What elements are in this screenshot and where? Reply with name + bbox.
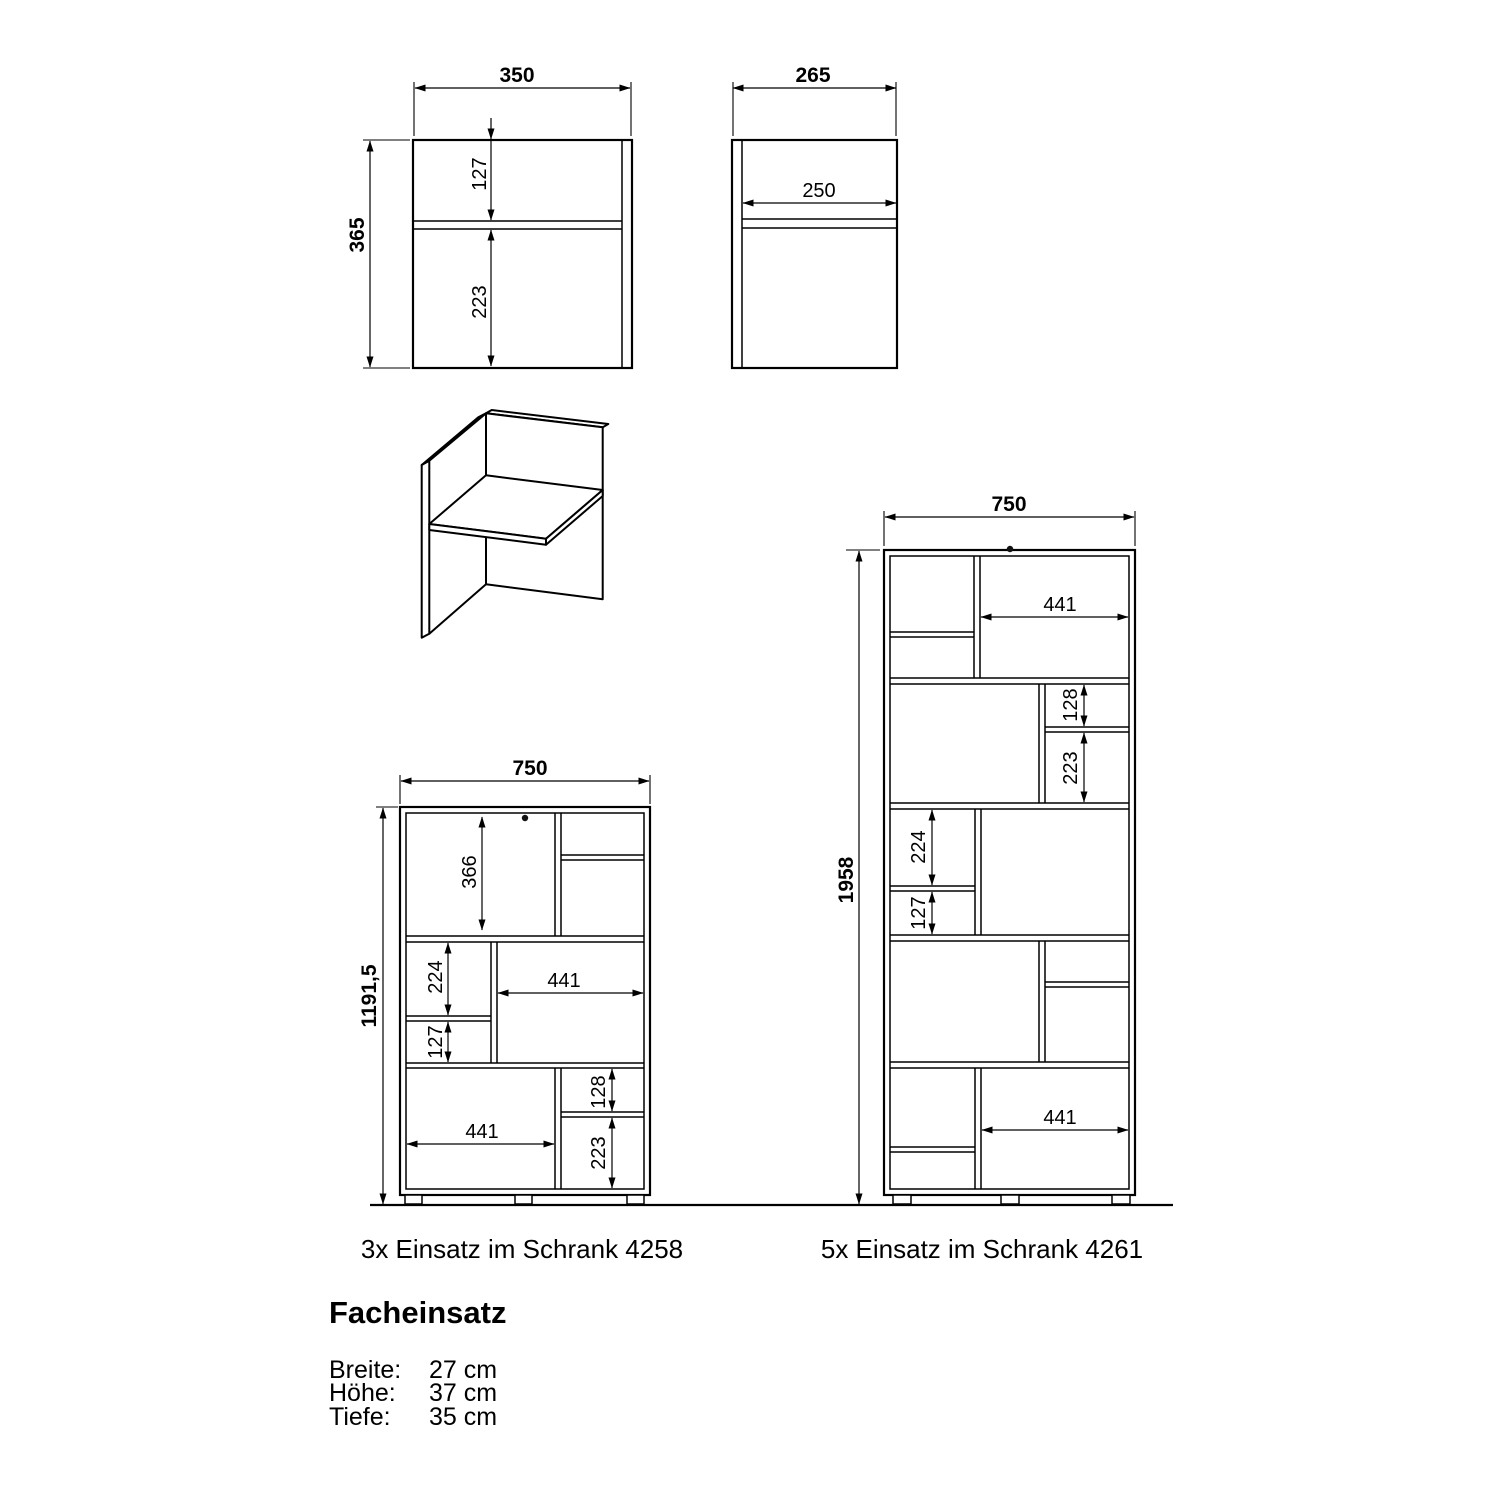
cabinet-foot <box>515 1195 532 1204</box>
dim-4261-height: 1958 <box>835 856 858 903</box>
dim-front-width: 350 <box>499 64 534 87</box>
dim-side-shelf-depth: 250 <box>802 180 835 202</box>
caption-cabinet-4258: 3x Einsatz im Schrank 4258 <box>361 1234 683 1264</box>
dim-4258-mid-lower: 127 <box>425 1025 447 1058</box>
dim-4261-row5-width: 441 <box>1043 1107 1076 1129</box>
spec-label: Tiefe: <box>329 1406 429 1429</box>
dim-4261-row2-upper: 128 <box>1060 688 1082 721</box>
dim-4258-height: 1191,5 <box>358 964 381 1027</box>
isometric-view <box>422 410 609 638</box>
dim-4261-row3-lower: 127 <box>908 896 930 929</box>
dim-4258-bottom-lower: 223 <box>588 1136 610 1169</box>
dim-4258-bottom-upper: 128 <box>588 1075 610 1108</box>
dim-4261-row1-width: 441 <box>1043 594 1076 616</box>
cabinet-foot <box>893 1195 911 1204</box>
side-view: 265 250 <box>732 64 897 368</box>
dim-4258-mid-width: 441 <box>547 970 580 992</box>
dim-4261-row2-lower: 223 <box>1060 751 1082 784</box>
spec-title: Facheinsatz <box>329 1295 506 1331</box>
dim-front-top-section: 127 <box>469 157 491 190</box>
cabinet-foot <box>1112 1195 1130 1204</box>
cabinet-4258-drawing: 750 1191,5 366 224 127 441 441 128 223 3… <box>358 757 683 1264</box>
technical-drawing-sheet: 350 365 127 223 265 250 <box>0 0 1500 1500</box>
shelf-pin-hole <box>522 815 528 821</box>
caption-cabinet-4261: 5x Einsatz im Schrank 4261 <box>821 1234 1143 1264</box>
dim-4258-top-cell: 366 <box>459 855 481 888</box>
shelf-pin-hole <box>1007 546 1013 552</box>
cabinet-foot <box>627 1195 644 1204</box>
dim-front-bottom-section: 223 <box>469 285 491 318</box>
spec-value: 35 cm <box>429 1403 497 1431</box>
dim-4261-row3-upper: 224 <box>908 830 930 863</box>
dim-4258-width: 750 <box>512 757 547 780</box>
front-view: 350 365 127 223 <box>346 64 632 368</box>
cabinet-foot <box>405 1195 422 1204</box>
cabinet-foot <box>1001 1195 1019 1204</box>
drawing-canvas: 350 365 127 223 265 250 <box>0 0 1500 1500</box>
dim-4261-width: 750 <box>991 493 1026 516</box>
dim-4258-bottom-width: 441 <box>465 1121 498 1143</box>
cabinet-4261-drawing: 750 1958 441 128 223 224 127 441 5x Eins… <box>821 493 1143 1264</box>
dim-4258-mid-upper: 224 <box>425 960 447 993</box>
spec-table: Breite:27 cm Höhe:37 cm Tiefe:35 cm <box>329 1359 497 1429</box>
spec-row-tiefe: Tiefe:35 cm <box>329 1406 497 1429</box>
dim-front-height: 365 <box>346 217 369 252</box>
dim-side-width: 265 <box>795 64 830 87</box>
